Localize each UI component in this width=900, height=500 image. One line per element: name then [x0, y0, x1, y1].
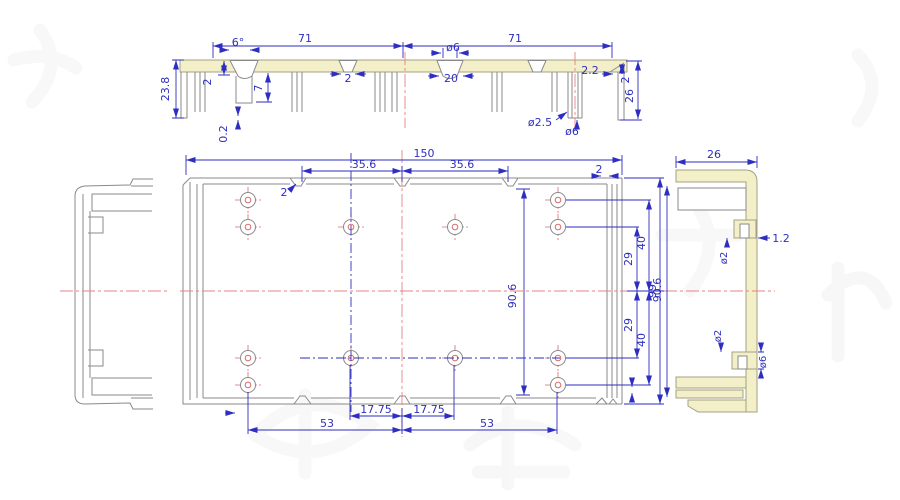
- dim-front-offset-right: 35.6: [450, 158, 475, 171]
- dim-front-groove: 2: [596, 163, 603, 176]
- dim-top-lip: 2: [201, 79, 214, 86]
- dim-front-row-upper: 40: [635, 236, 648, 250]
- dim-right-depth: 26: [707, 148, 721, 161]
- right-bottom-tab-slot: [738, 356, 747, 369]
- right-top-slot: [678, 188, 746, 210]
- dim-top-slot-dia: ø6: [446, 41, 460, 54]
- right-top-tab-slot: [740, 224, 749, 238]
- cad-drawing-page: 71 71 6° 2 23.8 7 0.2 2 ø6 20 2.2 2 26 ø…: [0, 0, 900, 500]
- right-bottom-flange-2: [676, 390, 743, 398]
- dim-top-slot-width: 20: [444, 72, 458, 85]
- screw-channel-notch: [230, 61, 258, 79]
- dim-front-span-left: 53: [320, 417, 334, 430]
- dim-right-boss-hole: ø2: [713, 330, 724, 342]
- dim-top-edge: 2: [619, 77, 632, 84]
- dim-front-notch-depth: 2: [281, 186, 288, 199]
- dim-top-height-left: 23.8: [159, 77, 172, 102]
- dim-right-boss-slot: ø6: [758, 356, 769, 368]
- dim-right-tab-offset: 1.2: [772, 232, 790, 245]
- left-side-view: [60, 179, 170, 409]
- dim-top-channel-depth: 7: [252, 85, 265, 92]
- dim-top-wall-step: 2.2: [581, 64, 599, 77]
- dim-top-length-right: 71: [508, 32, 522, 45]
- dim-front-width: 150: [414, 147, 435, 160]
- dim-top-hole-small: ø2.5: [528, 116, 552, 129]
- dim-top-notch-width: 2: [345, 72, 352, 85]
- dim-front-row-lower: 40: [635, 333, 648, 347]
- cad-drawing-canvas: 71 71 6° 2 23.8 7 0.2 2 ø6 20 2.2 2 26 ø…: [0, 0, 900, 500]
- dim-top-height-right: 26: [623, 89, 636, 103]
- dim-top-length-left: 71: [298, 32, 312, 45]
- dim-top-hole-large: ø6: [565, 125, 579, 138]
- dim-front-mid-right: 17.75: [413, 403, 445, 416]
- left-profile-outline: [75, 179, 153, 409]
- front-view: 150 35.6 35.6 2 2 90.6 29 29 40 40 99 17…: [180, 147, 664, 437]
- dim-top-angle: 6°: [232, 36, 245, 49]
- dim-right-tab-hole: ø2: [719, 252, 730, 264]
- right-bottom-flange-1: [676, 377, 746, 388]
- top-section-view: 71 71 6° 2 23.8 7 0.2 2 ø6 20 2.2 2 26 ø…: [159, 32, 642, 143]
- dim-front-offset-left: 35.6: [352, 158, 377, 171]
- right-side-view: 26 90.6 ø2 1.2 ø2 ø6: [651, 148, 790, 412]
- front-dimension-lines: [186, 155, 664, 434]
- right-bottom-flange-3: [688, 400, 746, 412]
- dim-front-mid-left: 17.75: [360, 403, 392, 416]
- dim-front-row-upper-mid: 29: [622, 252, 635, 266]
- dim-front-span-right: 53: [480, 417, 494, 430]
- dim-front-inner-height: 90.6: [506, 284, 519, 309]
- dim-right-height: 90.6: [651, 278, 664, 303]
- front-construction-lines: [300, 153, 560, 412]
- dim-front-row-lower-mid: 29: [622, 318, 635, 332]
- front-mounting-holes: [235, 187, 571, 398]
- dim-top-gap: 0.2: [217, 125, 230, 143]
